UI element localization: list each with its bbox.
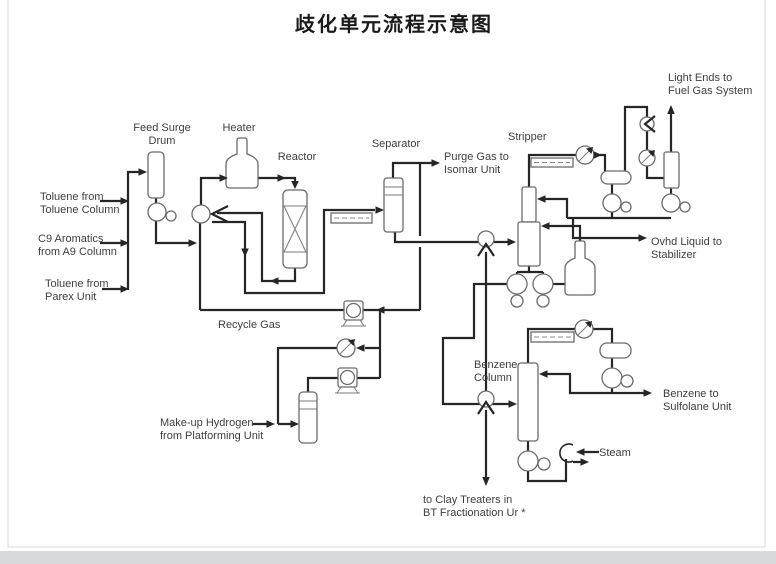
label-separator: Separator bbox=[372, 138, 421, 150]
label-light-ends-line1: Light Ends to bbox=[668, 72, 732, 84]
label-clay-treaters-line1: to Clay Treaters in bbox=[423, 494, 512, 506]
label-clay-treaters-line2: BT Fractionation Ur * bbox=[423, 507, 526, 519]
heater-furnace bbox=[226, 138, 258, 188]
light-ends-air-cooler bbox=[639, 150, 655, 166]
recycle-air-cooler bbox=[337, 339, 355, 357]
makeup-hydrogen-drum bbox=[299, 392, 317, 443]
label-recycle-gas: Recycle Gas bbox=[218, 319, 281, 331]
label-ovhd-liquid-line2: Stabilizer bbox=[651, 249, 697, 261]
stripper-bottoms-pump-1 bbox=[507, 274, 527, 307]
label-purge-gas-line2: Isomar Unit bbox=[444, 164, 500, 176]
benzene-bottoms-pump bbox=[518, 451, 550, 471]
labels: Feed Surge Drum Heater Reactor Separator… bbox=[38, 72, 752, 519]
label-light-ends-line2: Fuel Gas System bbox=[668, 85, 752, 97]
label-c9-aromatics-line1: C9 Aromatics bbox=[38, 233, 104, 245]
light-ends-drum bbox=[664, 152, 679, 188]
label-parex-feed-line1: Toluene from bbox=[45, 278, 109, 290]
benzene-reflux-pump bbox=[602, 368, 633, 388]
label-benzene-product-line1: Benzene to bbox=[663, 388, 719, 400]
label-parex-feed-line2: Parex Unit bbox=[45, 291, 96, 303]
label-ovhd-liquid-line1: Ovhd Liquid to bbox=[651, 236, 722, 248]
stripper-column bbox=[518, 187, 540, 266]
stripper-reflux-pump bbox=[603, 194, 631, 212]
label-steam: Steam bbox=[599, 447, 631, 459]
feed-surge-drum-vessel bbox=[148, 152, 164, 198]
diagram-border bbox=[8, 0, 765, 547]
stripper-reboiler-furnace bbox=[565, 241, 595, 295]
makeup-compressor bbox=[335, 368, 360, 393]
label-makeup-hydrogen-line2: from Platforming Unit bbox=[160, 430, 263, 442]
label-reactor: Reactor bbox=[278, 151, 317, 163]
benzene-condenser bbox=[531, 332, 574, 342]
label-feed-surge-drum-line1: Feed Surge bbox=[133, 122, 190, 134]
stripper-air-cooler bbox=[576, 146, 594, 164]
benzene-air-cooler bbox=[575, 320, 593, 338]
label-purge-gas-line1: Purge Gas to bbox=[444, 151, 509, 163]
flow-diagram-page: 歧化单元流程示意图 Feed Surge Drum Heater Reactor… bbox=[0, 0, 776, 564]
stripper-bottoms-pump-2 bbox=[533, 274, 553, 307]
label-stripper: Stripper bbox=[508, 131, 547, 143]
light-ends-crossover-symbol bbox=[640, 116, 655, 132]
process-flow-diagram: 歧化单元流程示意图 Feed Surge Drum Heater Reactor… bbox=[0, 0, 776, 564]
stripper-condenser bbox=[531, 158, 573, 167]
recycle-compressor bbox=[341, 301, 366, 326]
effluent-exchanger bbox=[331, 213, 372, 223]
stripper-overhead-drum bbox=[601, 171, 631, 184]
benzene-column-vessel bbox=[518, 363, 538, 441]
label-c9-aromatics-line2: from A9 Column bbox=[38, 246, 117, 258]
label-benzene-product-line2: Sulfolane Unit bbox=[663, 401, 732, 413]
page-title: 歧化单元流程示意图 bbox=[295, 12, 493, 36]
separator-vessel bbox=[384, 178, 403, 232]
label-toluene-column-feed-line1: Toluene from bbox=[40, 191, 104, 203]
label-feed-surge-drum-line2: Drum bbox=[149, 135, 176, 147]
reactor-vessel bbox=[283, 190, 307, 268]
label-benzene-column-line2: Column bbox=[474, 372, 512, 384]
label-benzene-column-line1: Benzene bbox=[474, 359, 517, 371]
light-ends-pump bbox=[662, 194, 690, 212]
benzene-overhead-drum bbox=[600, 343, 631, 358]
bottom-gray-bar bbox=[0, 551, 776, 564]
label-toluene-column-feed-line2: Toluene Column bbox=[40, 204, 120, 216]
feed-pump bbox=[148, 203, 176, 221]
label-heater: Heater bbox=[222, 122, 255, 134]
label-makeup-hydrogen-line1: Make-up Hydrogen bbox=[160, 417, 254, 429]
